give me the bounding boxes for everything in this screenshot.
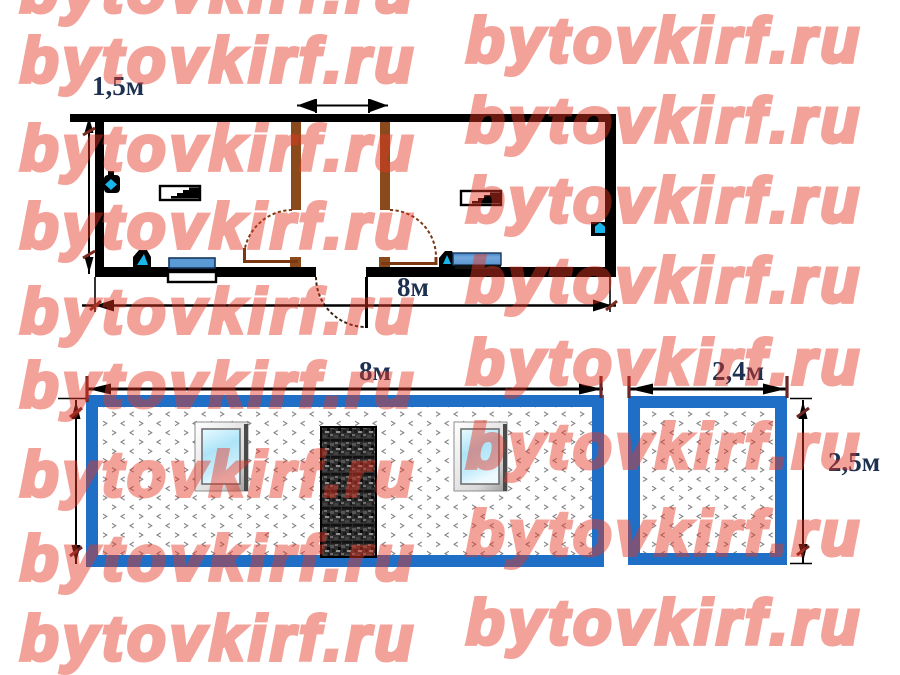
svg-text:bytovkirf.ru: bytovkirf.ru	[20, 277, 413, 347]
svg-text:bytovkirf.ru: bytovkirf.ru	[20, 351, 413, 421]
svg-text:bytovkirf.ru: bytovkirf.ru	[466, 166, 859, 236]
svg-text:bytovkirf.ru: bytovkirf.ru	[20, 114, 413, 184]
svg-text:bytovkirf.ru: bytovkirf.ru	[466, 499, 859, 569]
svg-text:bytovkirf.ru: bytovkirf.ru	[20, 524, 413, 594]
svg-text:bytovkirf.ru: bytovkirf.ru	[466, 412, 859, 482]
svg-text:bytovkirf.ru: bytovkirf.ru	[20, 440, 413, 510]
svg-text:bytovkirf.ru: bytovkirf.ru	[20, 604, 413, 674]
svg-text:bytovkirf.ru: bytovkirf.ru	[20, 192, 413, 262]
svg-text:bytovkirf.ru: bytovkirf.ru	[466, 246, 859, 316]
svg-text:bytovkirf.ru: bytovkirf.ru	[20, 0, 413, 26]
svg-text:bytovkirf.ru: bytovkirf.ru	[466, 328, 859, 398]
svg-text:bytovkirf.ru: bytovkirf.ru	[466, 6, 859, 76]
svg-text:bytovkirf.ru: bytovkirf.ru	[466, 588, 859, 658]
svg-text:bytovkirf.ru: bytovkirf.ru	[20, 26, 413, 96]
svg-text:bytovkirf.ru: bytovkirf.ru	[466, 86, 859, 156]
